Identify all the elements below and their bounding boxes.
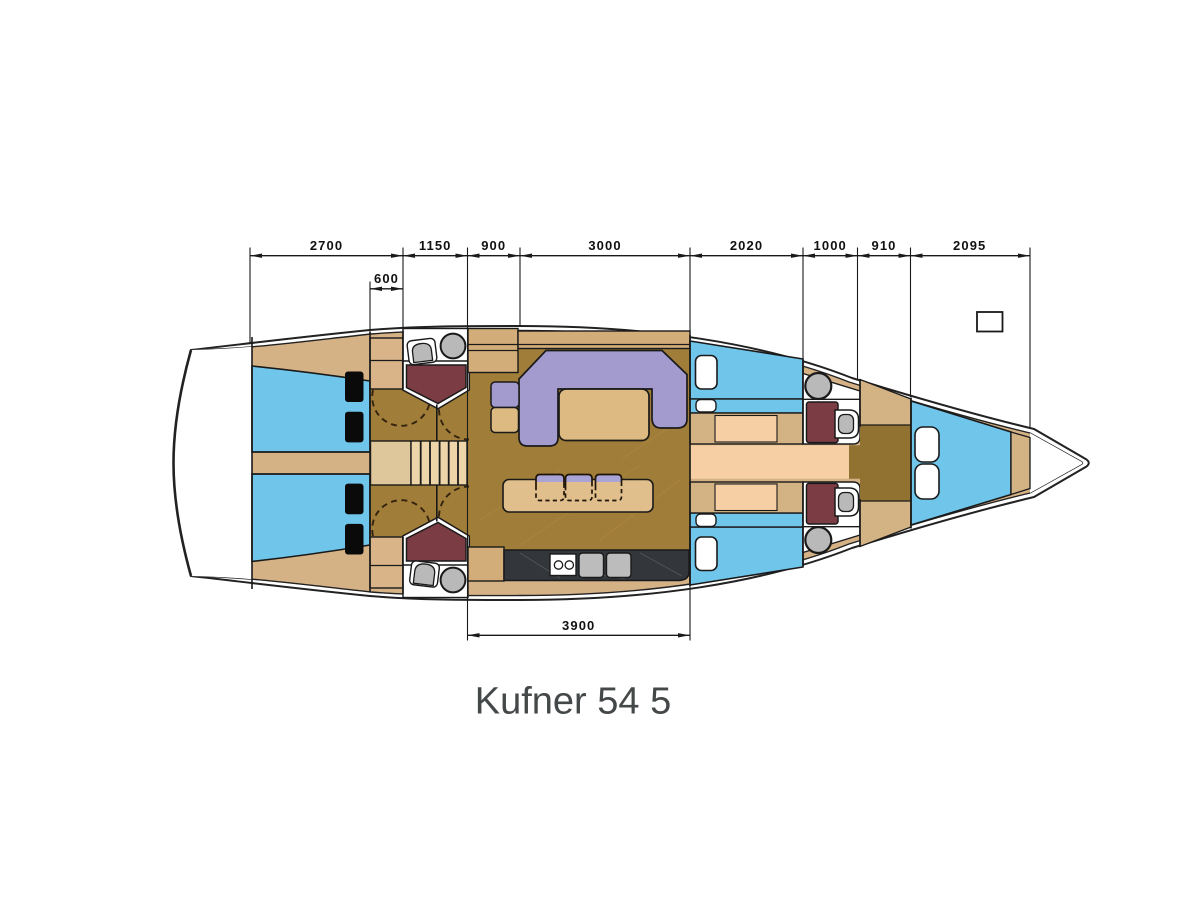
svg-text:910: 910 [872,238,897,253]
svg-text:3000: 3000 [588,238,621,253]
svg-text:Kufner 54 5: Kufner 54 5 [475,681,671,723]
svg-text:900: 900 [481,238,506,253]
svg-text:1150: 1150 [419,238,452,253]
svg-text:2020: 2020 [730,238,763,253]
svg-text:1000: 1000 [814,238,847,253]
svg-text:2700: 2700 [310,238,343,253]
svg-text:600: 600 [374,271,399,286]
svg-text:2095: 2095 [953,238,986,253]
svg-text:3900: 3900 [562,618,595,633]
